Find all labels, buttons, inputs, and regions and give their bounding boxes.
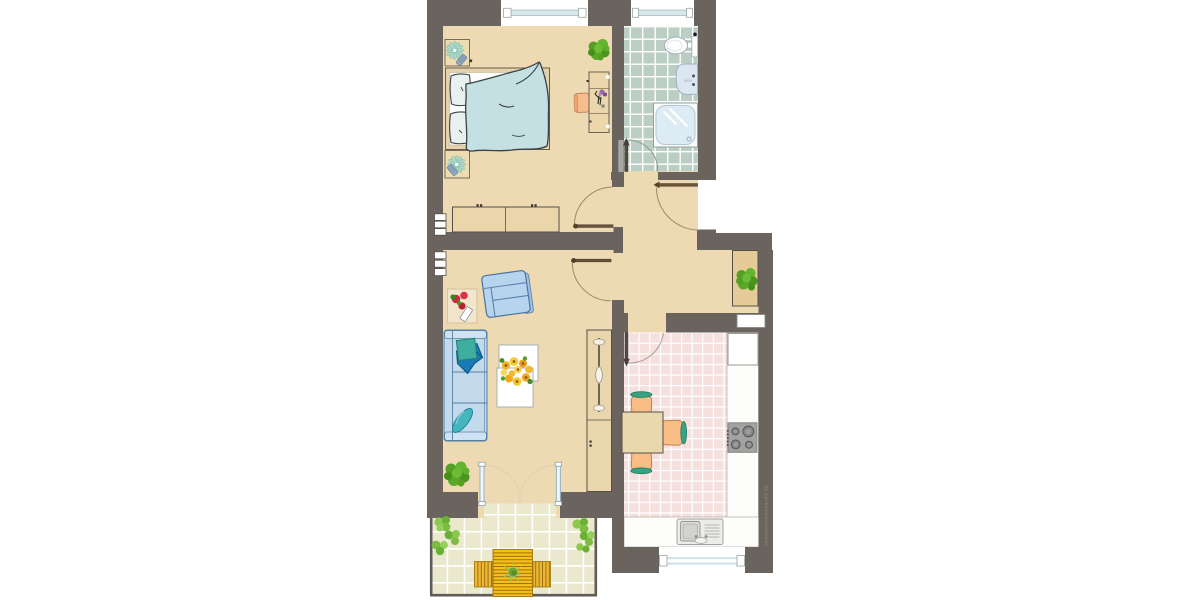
svg-text:IllustrationsDemografik.de: IllustrationsDemografik.de: [763, 485, 769, 546]
